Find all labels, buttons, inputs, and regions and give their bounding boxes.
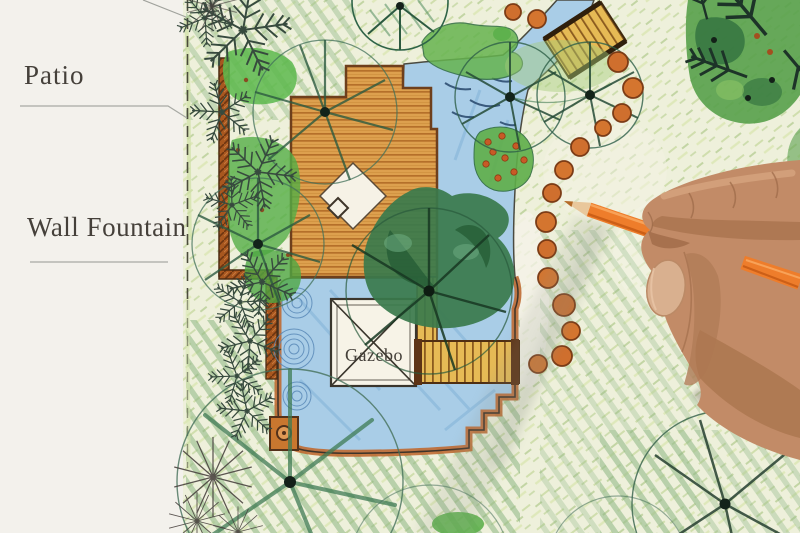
patio-label: Patio (24, 60, 85, 90)
spa-corner (270, 417, 298, 450)
gazebo-label: Gazebo (345, 345, 403, 365)
garden-design-drawing: Patio Wall Fountain Gazebo (0, 0, 800, 533)
berry-bush (474, 127, 533, 191)
landscape-plan-photo: Patio Wall Fountain Gazebo (0, 0, 800, 533)
wall-fountain-label: Wall Fountain (27, 212, 187, 242)
